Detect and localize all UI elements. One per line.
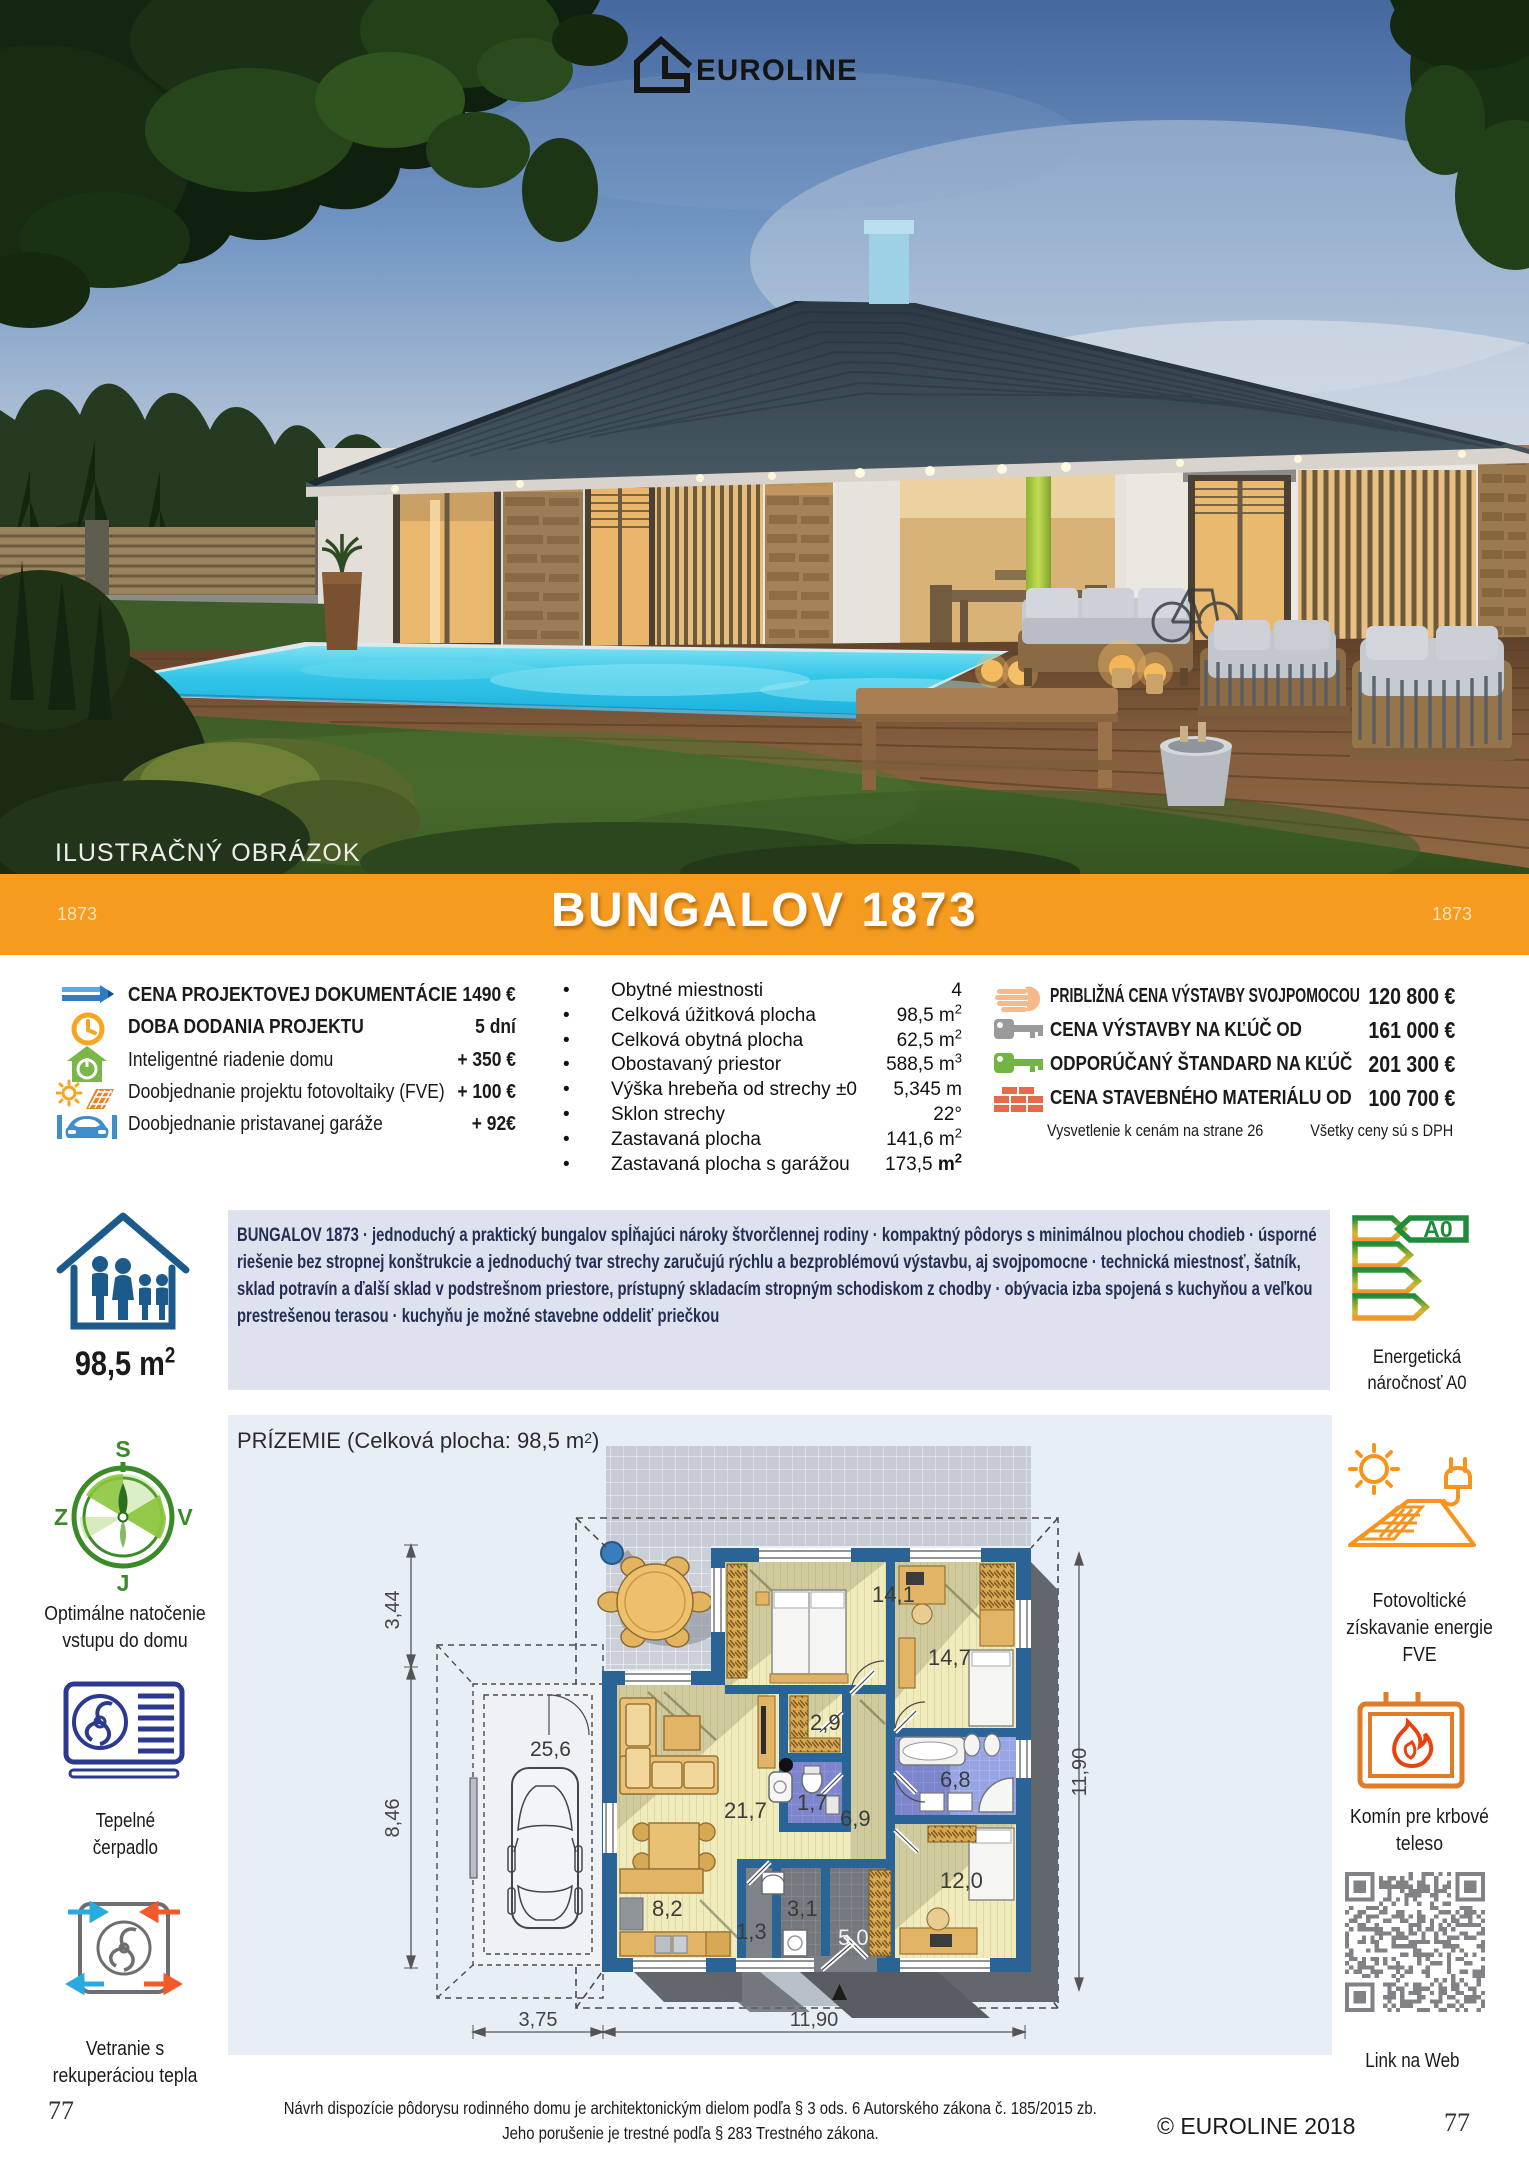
svg-text:5,0: 5,0 — [838, 1925, 869, 1950]
svg-text:8,2: 8,2 — [652, 1896, 683, 1921]
svg-text:EUROLINE: EUROLINE — [696, 54, 858, 87]
svg-text:6,8: 6,8 — [940, 1767, 971, 1792]
svg-text:2,9: 2,9 — [810, 1710, 841, 1735]
svg-text:A0: A0 — [1423, 1216, 1452, 1242]
svg-text:V: V — [177, 1504, 193, 1530]
svg-text:14,7: 14,7 — [928, 1645, 971, 1670]
svg-text:1,7: 1,7 — [797, 1790, 828, 1815]
svg-text:3,44: 3,44 — [382, 1591, 404, 1630]
svg-text:11,90: 11,90 — [1069, 1748, 1091, 1797]
svg-text:11,90: 11,90 — [790, 2009, 839, 2031]
svg-text:6,9: 6,9 — [840, 1806, 871, 1831]
svg-text:Z: Z — [54, 1504, 68, 1530]
svg-text:S: S — [115, 1441, 130, 1462]
svg-text:12,0: 12,0 — [940, 1868, 983, 1893]
svg-text:8,46: 8,46 — [382, 1799, 404, 1838]
svg-text:ILUSTRAČNÝ OBRÁZOK: ILUSTRAČNÝ OBRÁZOK — [55, 838, 361, 867]
svg-text:J: J — [117, 1570, 130, 1593]
svg-text:25,6: 25,6 — [530, 1738, 571, 1761]
svg-text:1,3: 1,3 — [736, 1919, 767, 1944]
svg-text:21,7: 21,7 — [724, 1798, 767, 1823]
svg-text:14,1: 14,1 — [872, 1582, 915, 1607]
svg-text:PRÍZEMIE (Celková plocha: 98,5: PRÍZEMIE (Celková plocha: 98,5 m2) — [237, 1428, 599, 1453]
svg-text:3,75: 3,75 — [519, 2009, 558, 2031]
svg-text:3,1: 3,1 — [787, 1896, 818, 1921]
